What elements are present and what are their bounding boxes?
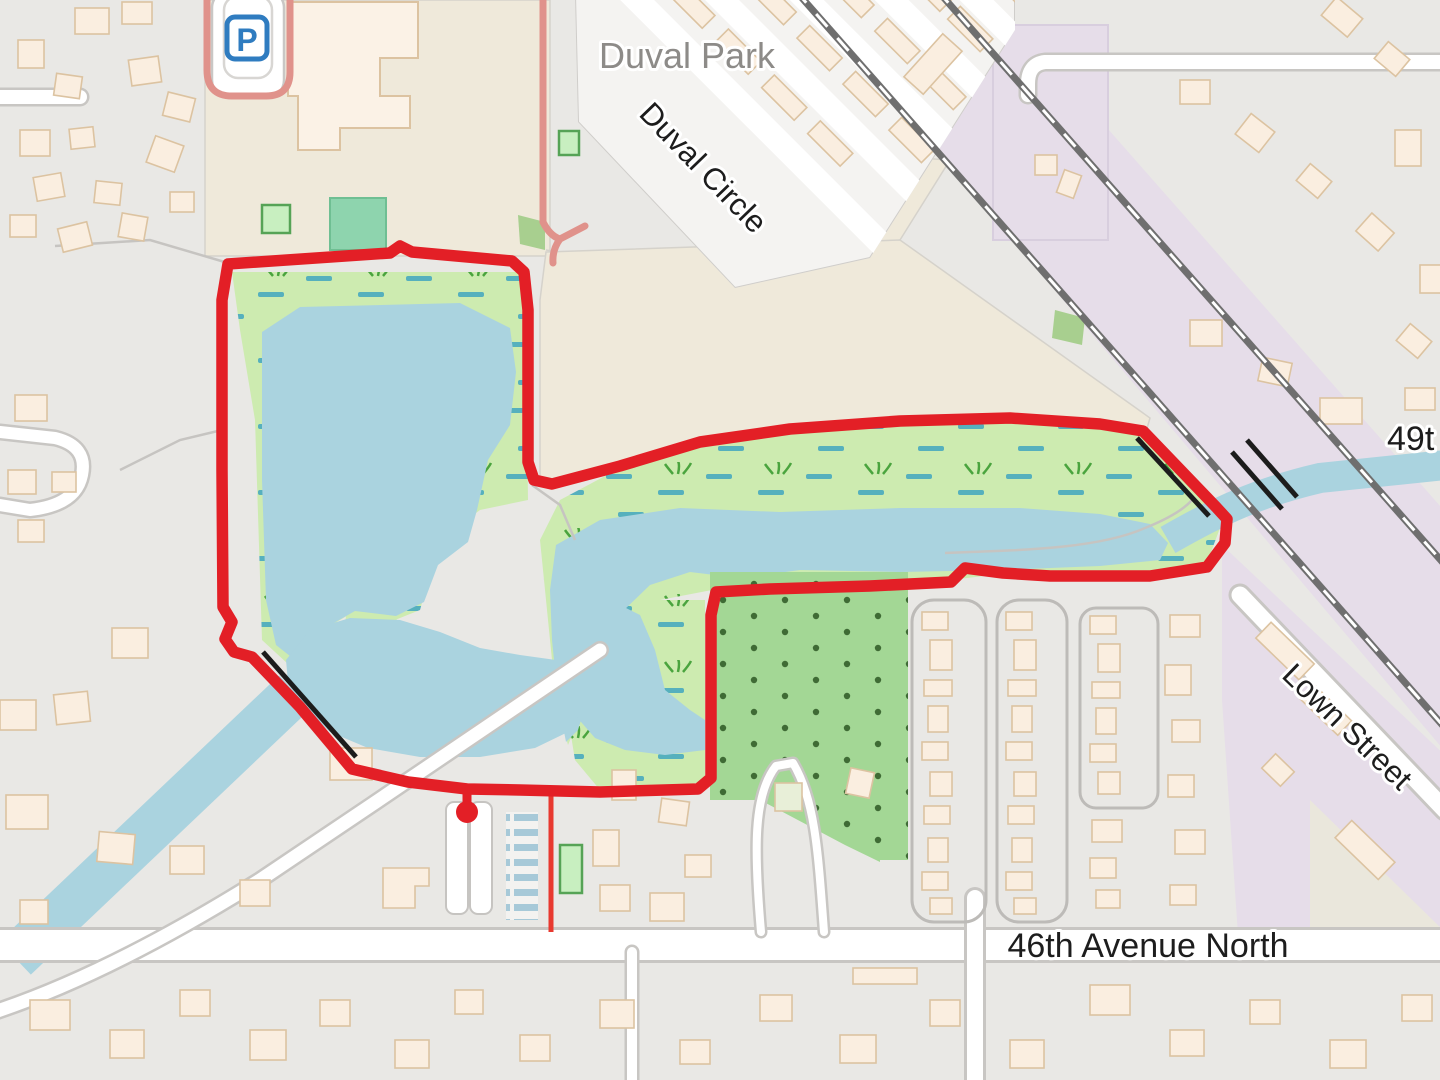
label-49th: 49t: [1387, 420, 1435, 458]
label-duval-park: Duval Park: [599, 35, 776, 76]
route-start-marker[interactable]: [456, 801, 478, 823]
svg-text:P: P: [236, 22, 257, 58]
striped-lot: [506, 812, 538, 920]
label-46th-avenue: 46th Avenue North: [1007, 927, 1288, 965]
map-canvas[interactable]: P Duval Park Duval Circle 49t Lown Stree…: [0, 0, 1440, 1080]
map-viewport[interactable]: P Duval Park Duval Circle 49t Lown Stree…: [0, 0, 1440, 1080]
parking-icon: P: [227, 17, 267, 59]
